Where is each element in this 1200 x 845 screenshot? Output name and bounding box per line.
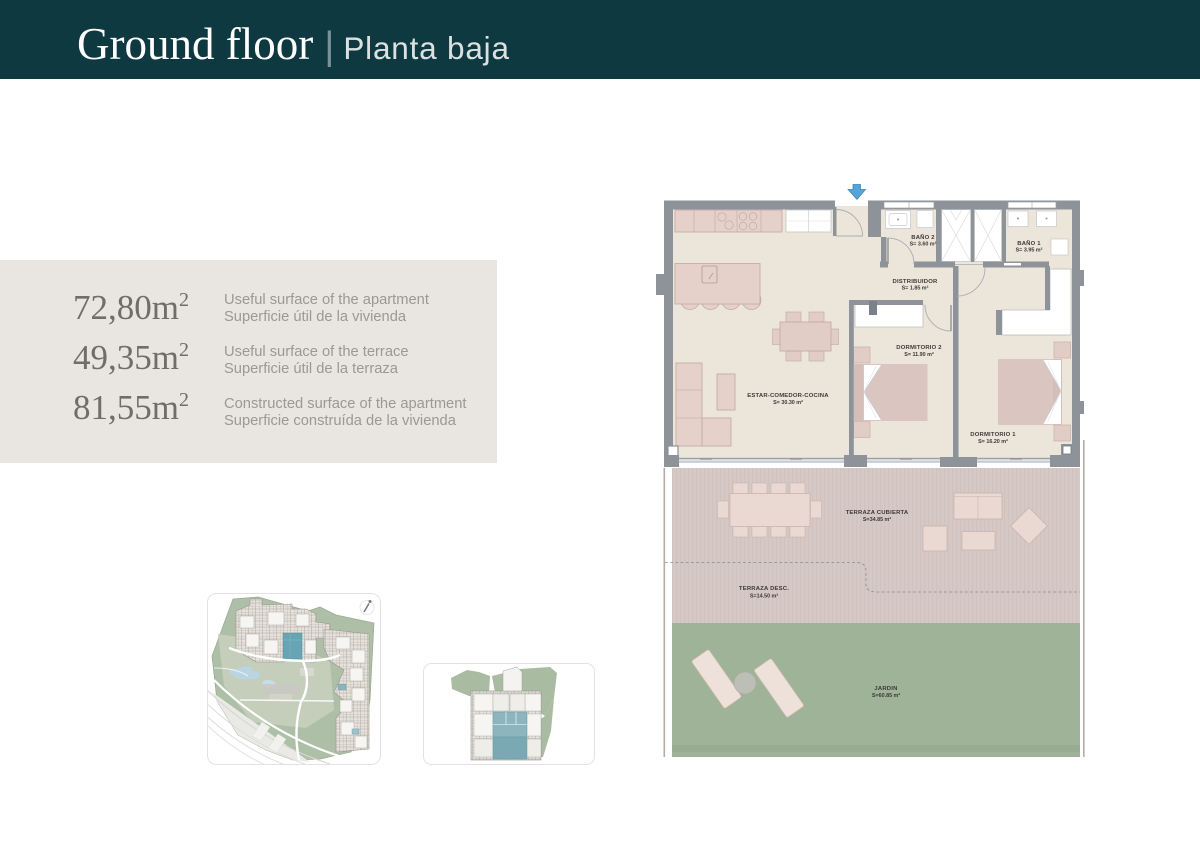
svg-text:DORMITORIO 2: DORMITORIO 2 <box>896 345 942 351</box>
svg-text:DORMITORIO 1: DORMITORIO 1 <box>970 432 1016 438</box>
svg-text:DISTRIBUIDOR: DISTRIBUIDOR <box>893 279 938 285</box>
svg-text:S=60.85 m²: S=60.85 m² <box>872 693 901 699</box>
svg-text:S= 30.30 m²: S= 30.30 m² <box>773 400 803 406</box>
svg-text:BAÑO 1: BAÑO 1 <box>1017 240 1041 247</box>
svg-text:JARDIN: JARDIN <box>874 686 897 692</box>
svg-text:TERRAZA CUBIERTA: TERRAZA CUBIERTA <box>846 510 909 516</box>
svg-text:S= 16.20 m²: S= 16.20 m² <box>978 439 1008 445</box>
svg-text:S= 3.60 m²: S= 3.60 m² <box>910 242 937 248</box>
svg-text:TERRAZA DESC.: TERRAZA DESC. <box>739 586 789 592</box>
svg-text:S=34.85 m²: S=34.85 m² <box>863 517 892 523</box>
svg-text:ESTAR-COMEDOR-COCINA: ESTAR-COMEDOR-COCINA <box>747 393 829 399</box>
svg-text:BAÑO 2: BAÑO 2 <box>911 234 935 241</box>
svg-text:S= 1.85 m²: S= 1.85 m² <box>902 286 929 292</box>
svg-text:S=14.50 m²: S=14.50 m² <box>750 594 779 600</box>
svg-text:S= 11.90 m²: S= 11.90 m² <box>904 352 934 358</box>
svg-text:S= 3.95 m²: S= 3.95 m² <box>1016 248 1043 254</box>
